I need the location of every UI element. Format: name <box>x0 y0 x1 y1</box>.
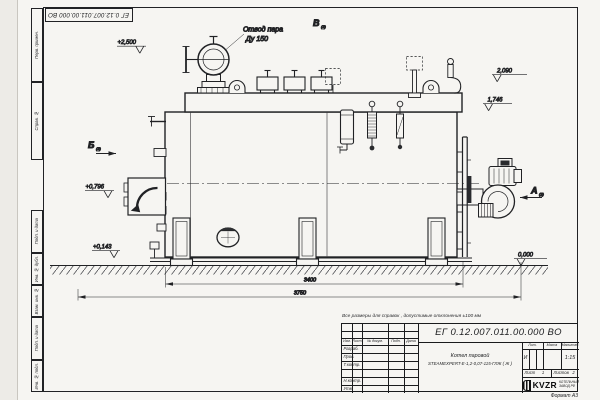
svg-text:+2,500: +2,500 <box>118 40 137 46</box>
kvzr-logo-icon <box>522 380 531 391</box>
lit-value: И <box>522 349 529 369</box>
product-name-line1: Котел паровой <box>451 353 490 359</box>
svg-text:2,090: 2,090 <box>496 68 513 74</box>
sheet-value: 1 <box>538 369 548 377</box>
view-label-a: А (2) <box>520 186 545 200</box>
view-label-v: В (2) <box>313 18 327 29</box>
svg-text:(2): (2) <box>96 146 102 151</box>
col-list: Лист <box>352 338 362 345</box>
row-blank <box>342 369 362 377</box>
hatch-cover <box>284 71 305 94</box>
elevation-mark: +0,796 <box>85 184 114 197</box>
burner <box>124 178 166 215</box>
format-label: Формат А3 <box>520 393 578 399</box>
kvzr-org-name: КОТЕЛЬНЫЙ ЗАВОД РФ <box>559 381 579 388</box>
view-label-b: Б (2) <box>88 140 116 156</box>
steam-outlet-valve <box>183 37 230 94</box>
product-name-line2: STEAMEXPERT-Е-1,2-0,07-115-ГЛЖ ( Ж ) <box>428 361 512 366</box>
mass-label: Масса <box>543 342 561 349</box>
manhole <box>217 227 239 246</box>
row-razrab: Разраб. <box>342 345 362 353</box>
elevation-mark: 2,090 <box>492 68 527 81</box>
blower-motor <box>489 167 516 186</box>
manufacturer-logo: KVZR КОТЕЛЬНЫЙ ЗАВОД РФ <box>522 377 579 393</box>
title-block: Изм. Лист № докум. Подп. Дата Разраб. Пр… <box>341 323 578 392</box>
col-dokum: № докум. <box>362 338 388 345</box>
drum-hatches <box>257 71 332 94</box>
svg-text:3750: 3750 <box>294 291 307 297</box>
svg-text:0,000: 0,000 <box>518 252 534 258</box>
hatch-cover <box>257 71 278 94</box>
view-arrow-right-icon <box>109 151 117 155</box>
view-arrow-left-icon <box>520 195 528 199</box>
row-prov: Пров. <box>342 353 362 361</box>
svg-text:(2): (2) <box>539 192 545 197</box>
kvzr-logo-text: KVZR <box>533 380 557 390</box>
elevation-mark: 0,000 <box>514 252 547 265</box>
svg-text:3400: 3400 <box>304 278 317 284</box>
sheets-label: Листов <box>552 369 569 377</box>
callout-line1: Отвод пара <box>243 26 283 34</box>
row-tkontr: Т.контр. <box>342 361 362 369</box>
svg-text:+0,796: +0,796 <box>86 184 105 190</box>
row-nkontr: Н.контр. <box>342 377 362 385</box>
svg-text:Б: Б <box>88 140 95 150</box>
col-izm: Изм. <box>342 338 352 345</box>
svg-text:В: В <box>313 18 320 28</box>
steam-outlet-callout: Отвод пара Ду 150 <box>226 26 283 50</box>
col-podp: Подп. <box>388 338 404 345</box>
valve-handwheel <box>183 47 199 73</box>
svg-text:+0,143: +0,143 <box>93 244 112 250</box>
svg-text:А: А <box>530 186 538 196</box>
support-leg <box>171 218 193 266</box>
svg-text:1,746: 1,746 <box>488 97 504 103</box>
hatch-cover <box>311 71 332 94</box>
scale-value: 1:15 <box>561 349 579 369</box>
support-leg <box>426 218 448 266</box>
blower-fan <box>479 159 522 219</box>
ground-line <box>50 266 548 275</box>
row-utv: Утв. <box>342 385 362 393</box>
sheets-value: 2 <box>569 369 578 377</box>
callout-line2: Ду 150 <box>245 36 268 43</box>
elevation-mark: +2,500 <box>117 40 146 53</box>
top-stub-pipe <box>407 57 423 98</box>
lit-label: Лит. <box>522 342 543 349</box>
rear-fitting-hook <box>448 59 461 94</box>
elevation-mark: 1,746 <box>483 97 512 110</box>
elevation-mark: +0,143 <box>92 244 120 257</box>
drawing-designation: ЕГ 0.12.007.011.00.000 ВО <box>418 324 579 342</box>
svg-text:(2): (2) <box>321 24 327 29</box>
product-name: Котел паровой STEAMEXPERT-Е-1,2-0,07-115… <box>418 342 522 377</box>
reference-note: Все размеры для справок , допустимые отк… <box>342 314 562 319</box>
drawing-sheet: Перв. примен. Справ. № Подп. и дата Инв.… <box>0 0 600 400</box>
drain-valve <box>150 242 159 249</box>
col-data: Дата <box>404 338 418 345</box>
scale-label: Масштаб <box>561 342 579 349</box>
sheet-label: Лист <box>523 369 539 377</box>
support-leg <box>297 218 319 266</box>
